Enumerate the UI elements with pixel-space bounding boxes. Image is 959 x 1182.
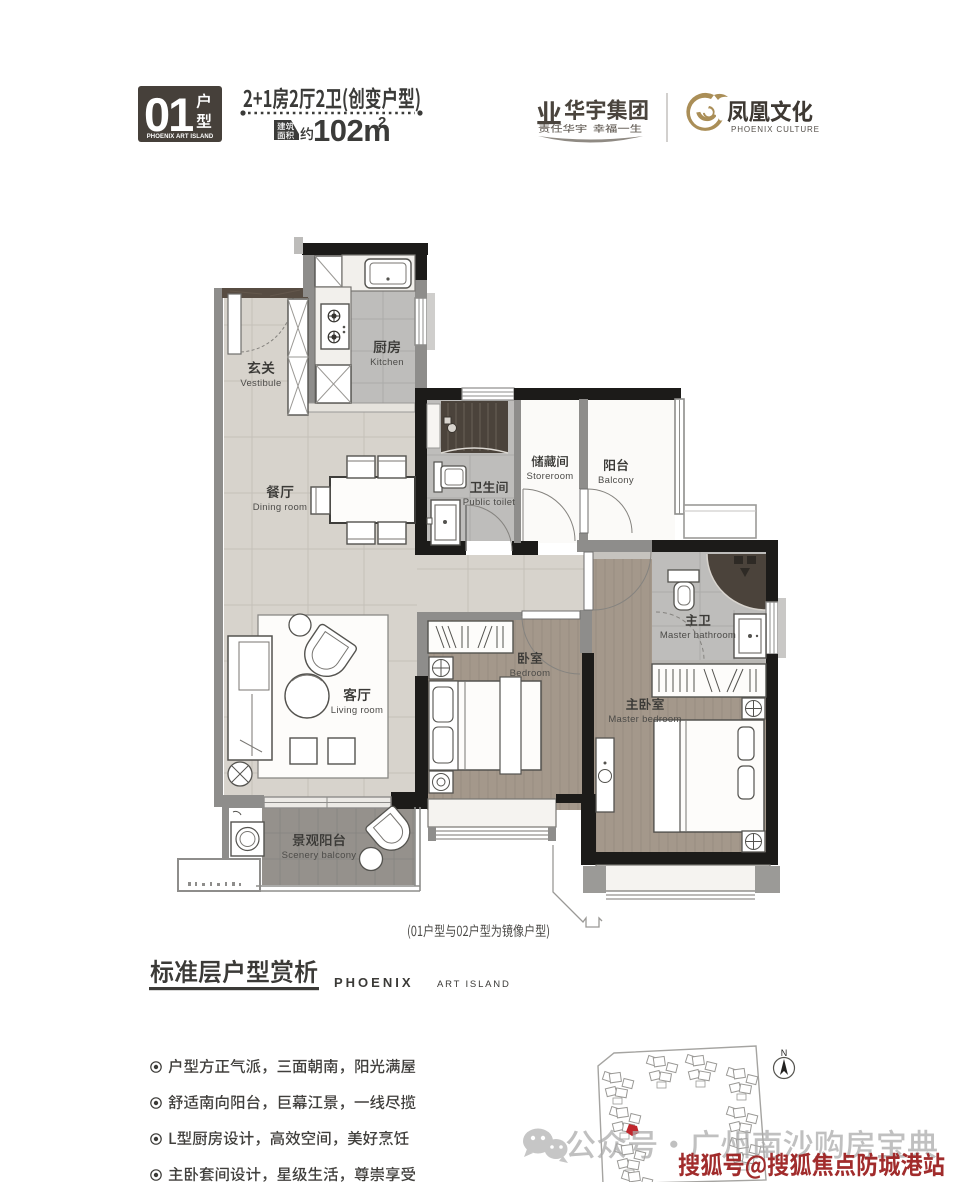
svg-text:Scenery balcony: Scenery balcony bbox=[282, 850, 357, 861]
svg-text:Master bedroom: Master bedroom bbox=[608, 714, 681, 725]
svg-text:Dining room: Dining room bbox=[253, 502, 308, 513]
svg-text:Vestibule: Vestibule bbox=[240, 378, 281, 389]
svg-text:Bedroom: Bedroom bbox=[510, 668, 551, 679]
svg-text:PHOENIX: PHOENIX bbox=[334, 975, 414, 990]
svg-text:PHOENIX ART ISLAND: PHOENIX ART ISLAND bbox=[147, 134, 214, 140]
svg-text:2: 2 bbox=[378, 114, 386, 131]
svg-text:ART ISLAND: ART ISLAND bbox=[437, 979, 511, 990]
svg-text:PHOENIX CULTURE: PHOENIX CULTURE bbox=[731, 125, 820, 134]
svg-text:Public toilet: Public toilet bbox=[463, 497, 516, 508]
svg-text:N: N bbox=[781, 1048, 788, 1058]
svg-text:Master bathroom: Master bathroom bbox=[660, 630, 736, 641]
svg-text:Kitchen: Kitchen bbox=[370, 357, 404, 368]
svg-text:Balcony: Balcony bbox=[598, 475, 634, 486]
svg-text:Storeroom: Storeroom bbox=[526, 471, 573, 482]
svg-text:Living room: Living room bbox=[331, 705, 383, 716]
